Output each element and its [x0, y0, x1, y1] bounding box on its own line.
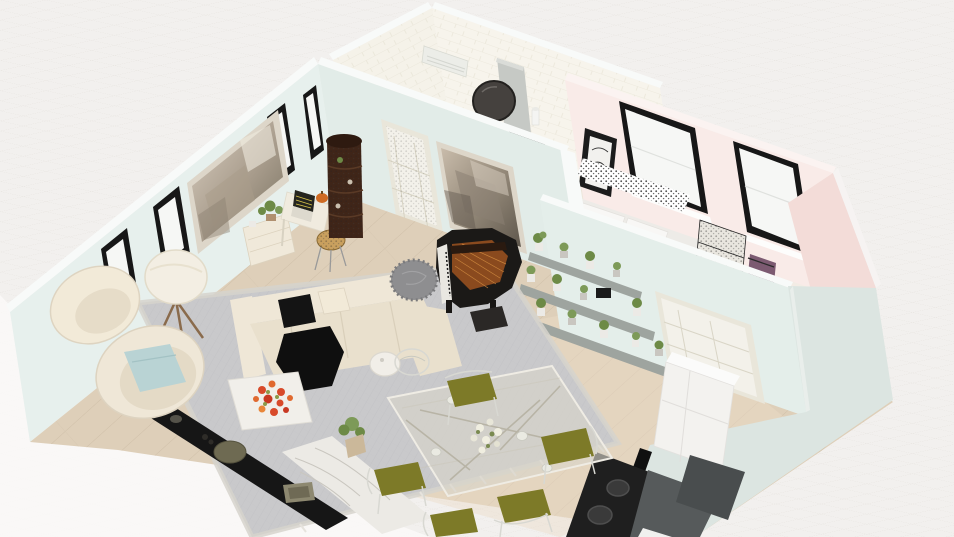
- cream-pillow[interactable]: [318, 288, 350, 314]
- curio-tower[interactable]: [326, 134, 363, 238]
- shaggy-stool[interactable]: [391, 260, 437, 300]
- floorplan-viewport: [0, 0, 954, 537]
- black-pillow[interactable]: [278, 294, 316, 328]
